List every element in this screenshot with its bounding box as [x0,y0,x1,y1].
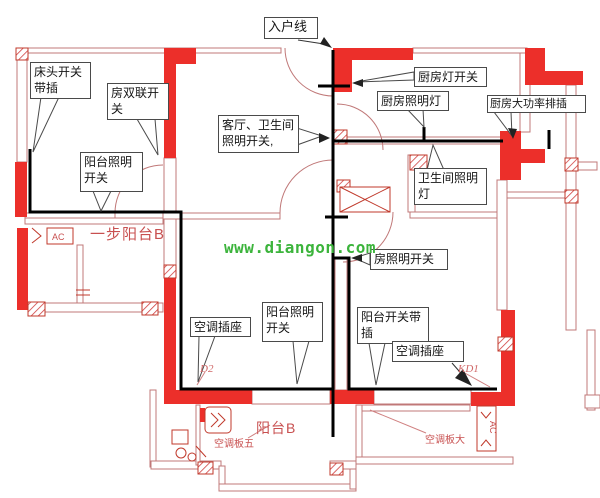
callout-entry-line: 入户线 [264,17,318,39]
callout-balcony-light-switch-right: 阳台照明 开关 [262,302,323,342]
callout-balcony-light-left-line1: 阳台照明 [84,154,139,170]
callout-bedside-switch: 床头开关 带插 [30,62,91,99]
callout-room-double-line1: 房双联开 [111,85,165,101]
ac-label-left: AC [52,232,65,242]
callout-ac-socket-left: 空调插座 [190,317,251,337]
callout-balcony-light-right-line1: 阳台照明 [266,304,319,320]
callout-entry-line-text: 入户线 [268,19,314,35]
callout-bedside-line2: 带插 [34,80,87,96]
callout-living-bath-switch: 客厅、卫生间 照明开关, [218,115,299,153]
callout-room-double-switch: 房双联开 关 [107,83,169,120]
callout-balcony-switch-socket-line1: 阳台开关带 [361,309,425,325]
callout-room-double-line2: 关 [111,101,165,117]
callout-room-light-switch-text: 房照明开关 [374,251,444,267]
callout-balcony-light-switch-left: 阳台照明 开关 [80,152,143,192]
callout-balcony-light-left-line2: 开关 [84,170,139,186]
callout-living-bath-line2: 照明开关, [222,133,295,149]
callout-balcony-switch-socket-line2: 插 [361,325,425,341]
walls-group [17,48,600,491]
callout-kitchen-power-strip: 厨房大功率排插 [487,95,586,113]
callout-bedside-line1: 床头开关 [34,64,87,80]
callout-bathroom-light-line2: 灯 [418,186,483,202]
callout-kitchen-light-switch: 厨房灯开关 [414,67,487,87]
callout-ac-socket-right: 空调插座 [392,341,464,362]
callout-kitchen-power-strip-text: 厨房大功率排插 [490,97,583,111]
callout-bathroom-light-line1: 卫生间照明 [418,170,483,186]
label-ac-panel-big: 空调板大 [425,431,465,446]
callout-ac-socket-left-text: 空调插座 [194,319,247,335]
label-d2: D2 [200,363,213,375]
ac-label-right: AC [488,421,498,434]
floorplan: AC AC www.diangon. [0,0,600,498]
callout-room-light-switch: 房照明开关 [370,249,448,270]
callout-kitchen-light-switch-text: 厨房灯开关 [418,69,483,85]
callout-kitchen-light: 厨房照明灯 [377,91,449,111]
callout-living-bath-line1: 客厅、卫生间 [222,117,295,133]
callout-ac-socket-right-text: 空调插座 [396,343,460,359]
balcony-mark-icon [32,228,41,243]
watermark: www.diangon.com [224,238,376,258]
callout-kitchen-light-text: 厨房照明灯 [381,93,445,109]
label-ac-panel-five: 空调板五 [214,435,254,450]
label-kd1: KD1 [458,363,479,375]
callout-balcony-light-right-line2: 开关 [266,320,319,336]
label-balcony-b: 阳台B [256,418,296,438]
callout-balcony-switch-socket: 阳台开关带 插 [357,307,429,344]
shaft-x-box [340,187,390,212]
label-step-balcony: 一步阳台B [90,223,165,244]
callout-bathroom-light: 卫生间照明 灯 [414,168,487,205]
